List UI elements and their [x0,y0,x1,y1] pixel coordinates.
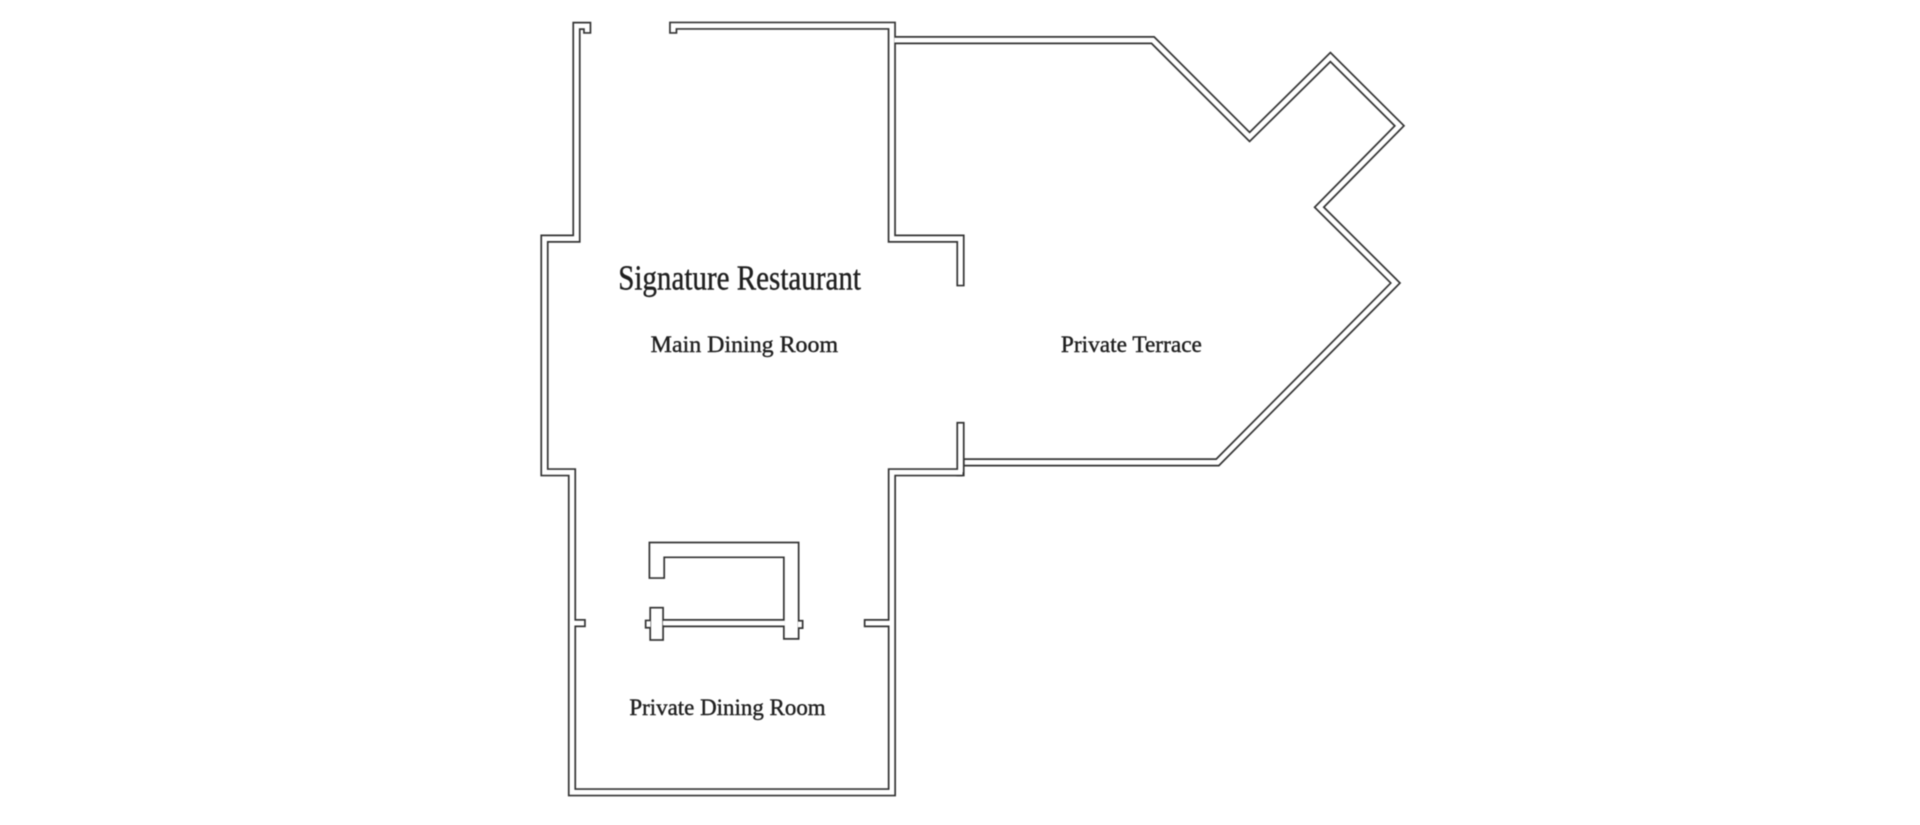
svg-text:Signature Restaurant: Signature Restaurant [618,258,861,297]
svg-text:Private Dining Room: Private Dining Room [629,695,825,721]
svg-text:Main Dining Room: Main Dining Room [651,332,838,358]
svg-text:Private Terrace: Private Terrace [1061,332,1202,358]
